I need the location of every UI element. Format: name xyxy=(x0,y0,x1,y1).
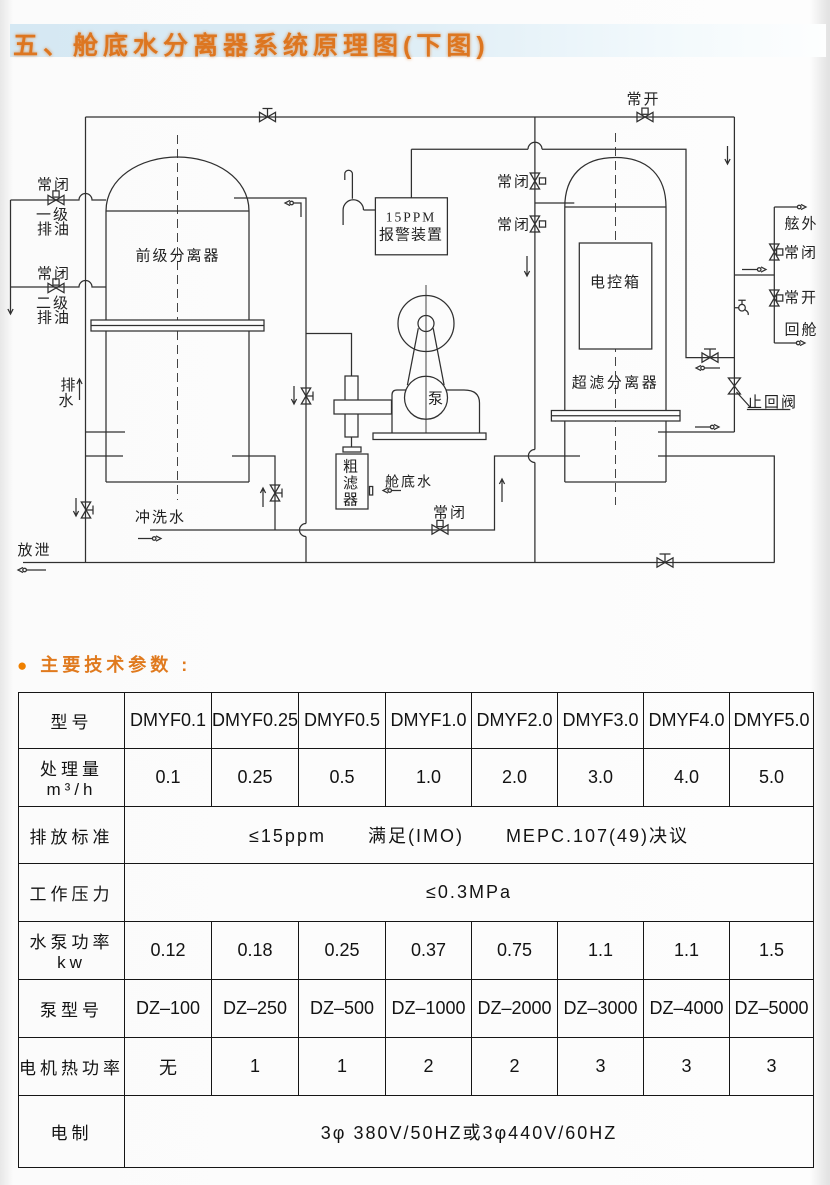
svg-text:报警装置: 报警装置 xyxy=(379,227,443,244)
svg-text:止回阀: 止回阀 xyxy=(747,394,798,411)
svg-text:器: 器 xyxy=(343,492,360,509)
svg-text:常开: 常开 xyxy=(626,91,660,108)
svg-text:泵: 泵 xyxy=(428,391,445,408)
svg-text:15PPM: 15PPM xyxy=(386,210,437,225)
svg-text:水: 水 xyxy=(58,393,75,410)
svg-text:滤: 滤 xyxy=(343,475,360,492)
svg-text:放泄: 放泄 xyxy=(18,542,52,559)
svg-text:电控箱: 电控箱 xyxy=(590,274,641,291)
svg-text:常闭: 常闭 xyxy=(784,245,818,262)
svg-text:粗: 粗 xyxy=(343,459,360,476)
svg-text:排油: 排油 xyxy=(37,221,71,238)
svg-text:舷外: 舷外 xyxy=(785,216,819,233)
svg-text:常闭: 常闭 xyxy=(497,174,531,191)
svg-text:常闭: 常闭 xyxy=(37,177,71,194)
svg-text:排油: 排油 xyxy=(37,310,71,327)
svg-text:常闭: 常闭 xyxy=(37,266,71,283)
svg-text:舱底水: 舱底水 xyxy=(385,474,433,490)
svg-text:常闭: 常闭 xyxy=(433,505,467,522)
svg-text:常闭: 常闭 xyxy=(497,217,531,234)
svg-text:冲洗水: 冲洗水 xyxy=(135,509,186,526)
svg-text:排: 排 xyxy=(60,377,77,394)
svg-text:回舱: 回舱 xyxy=(785,322,819,339)
svg-text:前级分离器: 前级分离器 xyxy=(135,248,220,265)
svg-text:超滤分离器: 超滤分离器 xyxy=(572,375,660,392)
svg-text:常开: 常开 xyxy=(784,290,818,307)
